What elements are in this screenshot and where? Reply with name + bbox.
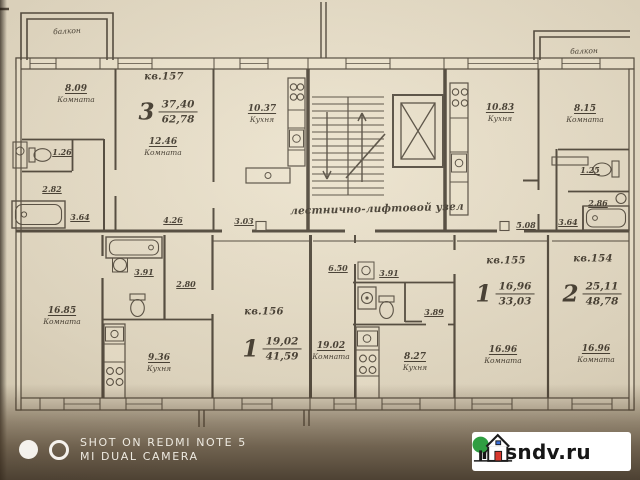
dimension-label: 6.50	[328, 263, 347, 273]
dimension-label: 1.25	[580, 165, 599, 175]
apartment-id-155: кв.155	[486, 256, 526, 267]
watermark-camera: SHOT ON REDMI NOTE 5 MI DUAL CAMERA	[19, 436, 247, 464]
apartment-summary-156: 1 19,0241,59	[243, 335, 302, 362]
house-tree-logo-icon	[472, 432, 514, 465]
room-label-kuhnya-10-83: 10.83 Кухня	[486, 103, 514, 123]
dimension-label: 3.64	[558, 217, 577, 227]
dimension-label: 3.89	[424, 307, 443, 317]
dimension-label: 3.64	[70, 212, 89, 222]
stove-icon	[246, 78, 305, 183]
room-label-komnata-16-96-a: 16.96 Комната	[484, 345, 522, 365]
stairs-icon	[312, 97, 385, 195]
camera-ring-icon	[49, 440, 69, 460]
balcony-label-left: балкон	[53, 26, 81, 36]
apartment-summary-154: 2 25,1148,78	[563, 280, 622, 307]
stove-icon	[450, 83, 468, 215]
dimension-label: 2.82	[42, 184, 61, 194]
apartment-id-154: кв.154	[573, 254, 613, 265]
room-label-komnata-16-96-b: 16.96 Комната	[577, 344, 615, 364]
dimension-label: 3.91	[134, 267, 153, 277]
room-label-komnata-8-15: 8.15 Комната	[566, 104, 604, 124]
camera-dot-icon	[19, 440, 38, 459]
room-label-kuhnya-10-37: 10.37 Кухня	[248, 104, 276, 124]
stove-icon	[356, 327, 379, 398]
apartment-summary-157: 3 37,4062,78	[139, 98, 198, 125]
floorplan-photo: балкон балкон 8.09 Комната кв.157 3 37,4…	[0, 0, 640, 480]
dimension-label: 1.26	[52, 147, 71, 157]
watermark-site-badge: rosndv.ru	[472, 432, 631, 471]
apartment-summary-155: 1 16,9633,03	[476, 280, 535, 307]
floorplan-drawing	[0, 0, 640, 480]
elevator-icon	[393, 95, 443, 167]
dimension-label: 2.80	[176, 279, 195, 289]
dimension-label: 3.03	[234, 216, 253, 226]
room-label-komnata-12-46: 12.46 Комната	[144, 137, 182, 157]
dimension-label: 4.26	[163, 215, 182, 225]
camera-watermark-text: SHOT ON REDMI NOTE 5 MI DUAL CAMERA	[80, 436, 247, 464]
room-label-komnata-8-09: 8.09 Комната	[57, 84, 95, 104]
room-label-kuhnya-9-36: 9.36 Кухня	[147, 353, 171, 373]
apartment-id-156: кв.156	[244, 307, 284, 318]
stove-icon	[104, 324, 125, 398]
room-label-komnata-19-02: 19.02 Комната	[312, 341, 350, 361]
balcony-label-right: балкон	[570, 46, 598, 56]
dimension-label: 2.86	[588, 198, 607, 208]
dimension-label: 5.08	[516, 220, 535, 230]
room-label-komnata-16-85: 16.85 Комната	[43, 306, 81, 326]
apartment-id-157: кв.157	[144, 72, 184, 83]
washing-machine-icon	[358, 287, 376, 309]
room-label-kuhnya-8-27: 8.27 Кухня	[403, 352, 427, 372]
dimension-label: 3.91	[379, 268, 398, 278]
